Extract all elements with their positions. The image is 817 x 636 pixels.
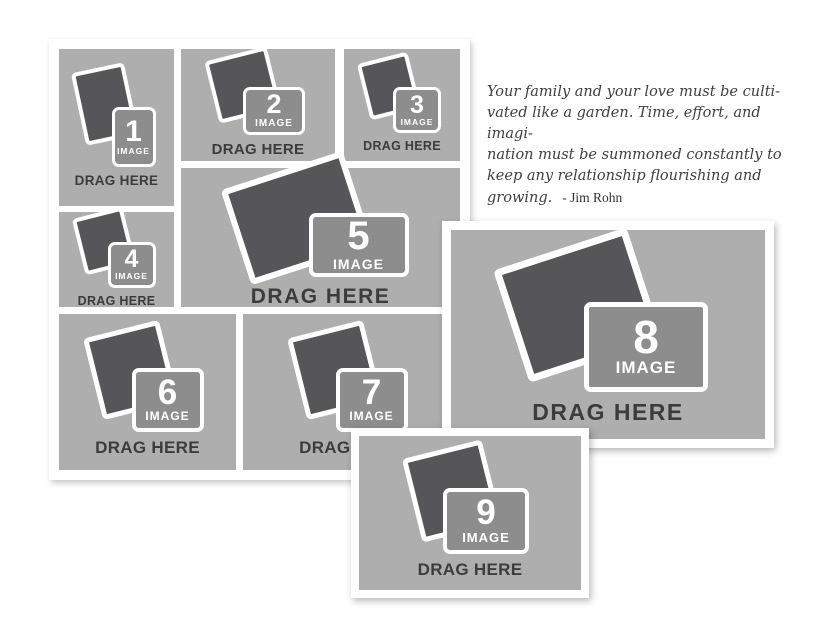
image-label: IMAGE (145, 410, 189, 422)
image-label: IMAGE (349, 410, 393, 422)
collage-card: 1 IMAGE DRAG HERE 2 IMAGE DRAG HERE 3 (49, 39, 470, 480)
image-label-box: 4 IMAGE (108, 242, 156, 288)
image-label-box: 6 IMAGE (132, 368, 204, 432)
image-label-box: 8 IMAGE (584, 302, 708, 392)
drag-here-label: DRAG HERE (532, 401, 684, 424)
photo-stack-icon: 7 IMAGE (296, 328, 408, 432)
drag-here-label: DRAG HERE (418, 561, 523, 578)
image-label: IMAGE (117, 147, 150, 156)
image-slot-9-card: 9 IMAGE DRAG HERE (351, 428, 589, 598)
image-label: IMAGE (115, 272, 148, 281)
image-label-box: 2 IMAGE (243, 87, 305, 135)
image-slot-9[interactable]: 9 IMAGE DRAG HERE (359, 436, 581, 590)
drag-here-label: DRAG HERE (251, 286, 391, 307)
quote-block: Your family and your love must be culti-… (487, 82, 809, 209)
image-slot-3[interactable]: 3 IMAGE DRAG HERE (344, 49, 460, 161)
image-label-box: 9 IMAGE (443, 488, 529, 554)
image-label-box: 1 IMAGE (112, 107, 156, 167)
slot-number: 2 (266, 93, 281, 117)
photo-stack-icon: 9 IMAGE (411, 448, 529, 554)
image-slot-4[interactable]: 4 IMAGE DRAG HERE (59, 212, 174, 307)
photo-stack-icon: 8 IMAGE (508, 246, 708, 392)
drag-here-label: DRAG HERE (75, 174, 159, 188)
photo-stack-icon: 1 IMAGE (78, 67, 156, 167)
image-label: IMAGE (616, 359, 677, 376)
slot-number: 7 (362, 378, 381, 409)
slot-number: 9 (476, 498, 495, 529)
image-label: IMAGE (333, 257, 384, 271)
slot-number: 8 (633, 317, 659, 357)
collage-template-page: 1 IMAGE DRAG HERE 2 IMAGE DRAG HERE 3 (0, 0, 817, 636)
quote-line: Your family and your love must be culti- (487, 82, 809, 103)
slot-number: 5 (347, 219, 369, 254)
slot-number: 1 (125, 119, 142, 145)
quote-line: keep any relationship flourishing and (487, 166, 809, 187)
photo-stack-icon: 4 IMAGE (78, 212, 156, 288)
image-label: IMAGE (462, 531, 510, 544)
slot-number: 3 (410, 94, 424, 116)
image-label: IMAGE (401, 118, 434, 127)
image-slot-1[interactable]: 1 IMAGE DRAG HERE (59, 49, 174, 206)
image-slot-2[interactable]: 2 IMAGE DRAG HERE (181, 49, 335, 161)
quote-line: nation must be summoned constantly to (487, 145, 809, 166)
slot-number: 4 (125, 248, 139, 270)
drag-here-label: DRAG HERE (212, 142, 305, 157)
photo-stack-icon: 2 IMAGE (211, 53, 305, 135)
photo-stack-icon: 6 IMAGE (92, 328, 204, 432)
photo-stack-icon: 5 IMAGE (233, 168, 409, 277)
drag-here-label: DRAG HERE (78, 295, 156, 308)
image-label: IMAGE (255, 119, 293, 129)
image-label-box: 7 IMAGE (336, 368, 408, 432)
quote-line: vated like a garden. Time, effort, and i… (487, 103, 809, 145)
image-slot-5[interactable]: 5 IMAGE DRAG HERE (181, 168, 460, 307)
drag-here-label: DRAG HERE (95, 439, 200, 456)
drag-here-label: DRAG HERE (363, 140, 441, 153)
image-slot-8-card: 8 IMAGE DRAG HERE (442, 221, 774, 448)
image-slot-8[interactable]: 8 IMAGE DRAG HERE (451, 230, 765, 439)
image-label-box: 3 IMAGE (393, 87, 441, 133)
image-slot-6[interactable]: 6 IMAGE DRAG HERE (59, 314, 236, 470)
photo-stack-icon: 3 IMAGE (363, 57, 441, 133)
slot-number: 6 (158, 378, 177, 409)
quote-line: growing. (487, 188, 552, 209)
image-label-box: 5 IMAGE (309, 213, 409, 277)
quote-attribution: - Jim Rohn (562, 187, 622, 208)
